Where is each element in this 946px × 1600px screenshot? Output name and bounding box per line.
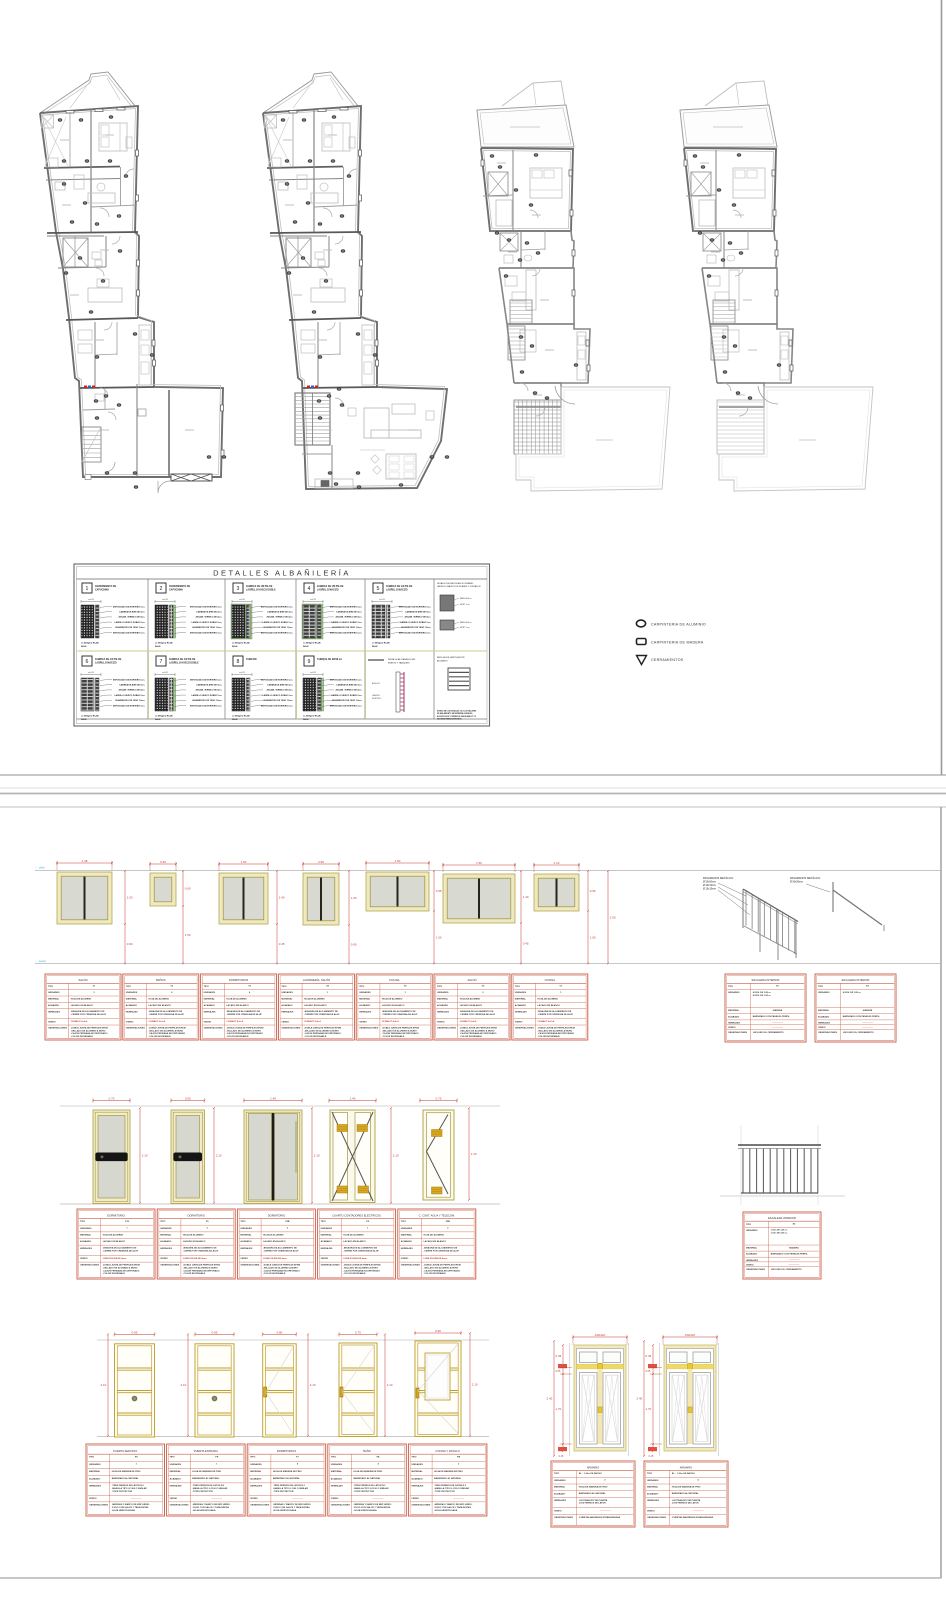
svg-text:LUNA PULIDA DE 4mm.: LUNA PULIDA DE 4mm.: [103, 1257, 128, 1260]
svg-text:CAMARA DE AIRE DE 5cm.: CAMARA DE AIRE DE 5cm.: [336, 684, 362, 687]
svg-text:AISLAM. TERMICO DE 4cm.: AISLAM. TERMICO DE 4cm.: [267, 689, 294, 692]
svg-text:TABICON: TABICON: [246, 658, 257, 661]
svg-text:UNIDADES: UNIDADES: [359, 991, 371, 994]
svg-text:HOJA DE MADERA DE PINO: HOJA DE MADERA DE PINO: [672, 1485, 701, 1488]
svg-text:-DOS PERNIOS DE LATON: -DOS PERNIOS DE LATON: [579, 1502, 606, 1505]
svg-text:—————: —————: [453, 1498, 465, 1500]
svg-text:CAMARA DE AIRE DE 5cm.: CAMARA DE AIRE DE 5cm.: [119, 611, 145, 614]
svg-text:TIPO: TIPO: [170, 1457, 175, 1459]
svg-text:—————: —————: [772, 1022, 784, 1024]
svg-text:OBSERVACIONES: OBSERVACIONES: [359, 1027, 379, 1030]
svg-text:TIPO: TIPO: [746, 1224, 751, 1226]
svg-text:MATERIAL: MATERIAL: [359, 998, 371, 1001]
svg-text:TIPO: TIPO: [515, 986, 520, 988]
svg-text:HERRAJES: HERRAJES: [170, 1484, 182, 1487]
svg-text:-COLOR INOXIDABLE: -COLOR INOXIDABLE: [304, 1035, 327, 1038]
svg-text:1.40: 1.40: [523, 895, 529, 899]
svg-text:-HOJA HIDROFUGADA: -HOJA HIDROFUGADA: [192, 1509, 216, 1512]
svg-text:BARNIZADO CON PANELES PERFIL: BARNIZADO CON PANELES PERFIL: [753, 1015, 791, 1018]
svg-text:-CIERRE POR CREMONA DE ALUF: -CIERRE POR CREMONA DE ALUF: [183, 1249, 219, 1252]
svg-text:VIDRIO: VIDRIO: [126, 1021, 134, 1023]
svg-text:RA-66: RA-66: [303, 645, 308, 648]
svg-text:MATERIAL: MATERIAL: [331, 1470, 343, 1473]
svg-text:ENFOSCADO DE MORTERO 1cm.: ENFOSCADO DE MORTERO 1cm.: [113, 678, 145, 681]
svg-text:-TRES PERNIOS DE LATON N.2: -TRES PERNIOS DE LATON N.2: [192, 1484, 225, 1487]
svg-text:-CIERRE POR CREMONA DE ALUF: -CIERRE POR CREMONA DE ALUF: [149, 1013, 185, 1016]
svg-text:ENFOSCADO DE MORTERO 1cm.: ENFOSCADO DE MORTERO 1cm.: [330, 631, 362, 634]
svg-text:-SELLADO DE ALUMINIO A MURO: -SELLADO DE ALUMINIO A MURO: [538, 1029, 573, 1032]
svg-text:LADRILLO HUECO DOBLE 7cm.: LADRILLO HUECO DOBLE 7cm.: [331, 694, 362, 697]
svg-text:-HOJA HIDROFUGADA: -HOJA HIDROFUGADA: [273, 1509, 297, 1512]
svg-text:ACABADO: ACABADO: [240, 1240, 251, 1243]
svg-text:LACADO EN BLANCO: LACADO EN BLANCO: [149, 1004, 172, 1007]
svg-text:0.75: 0.75: [355, 1330, 361, 1334]
svg-text:HOJA DE MADERA DE PINO: HOJA DE MADERA DE PINO: [273, 1470, 302, 1473]
svg-text:ACABADO: ACABADO: [401, 1240, 412, 1243]
svg-text:2.40: 2.40: [637, 1397, 643, 1401]
svg-text:e= 490kg/m2 Rf-240: e= 490kg/m2 Rf-240: [155, 715, 173, 718]
svg-text:e= 490kg/m2 Rf-240: e= 490kg/m2 Rf-240: [372, 642, 390, 645]
svg-text:ENFOSCADO DE MORTERO 1cm.: ENFOSCADO DE MORTERO 1cm.: [190, 605, 222, 608]
svg-text:VIDRIO: VIDRIO: [818, 1027, 826, 1029]
svg-text:LADRILLO HUECO DOBLE 7cm.: LADRILLO HUECO DOBLE 7cm.: [191, 694, 222, 697]
svg-text:PUERTA ENTRADA: PUERTA ENTRADA: [194, 1449, 218, 1453]
svg-text:RA-66: RA-66: [155, 645, 160, 648]
svg-text:ACABADO: ACABADO: [746, 1253, 757, 1256]
svg-text:-CAJON PERSIANA INCORPORADO: -CAJON PERSIANA INCORPORADO: [460, 1032, 497, 1035]
svg-text:ENFOSCADO DE MORTERO 1cm.: ENFOSCADO DE MORTERO 1cm.: [399, 605, 431, 608]
svg-text:VIDRIO: VIDRIO: [281, 1021, 289, 1023]
svg-text:UNIDADES: UNIDADES: [515, 991, 527, 994]
svg-text:TIPO: TIPO: [204, 986, 209, 988]
svg-text:MATERIAL: MATERIAL: [204, 998, 216, 1001]
svg-text:UNIDADES: UNIDADES: [160, 1227, 172, 1230]
svg-text:DORMITORIO: DORMITORIO: [187, 1213, 204, 1217]
svg-text:4 UDS. DE 1,90 m.: 4 UDS. DE 1,90 m.: [753, 994, 772, 997]
svg-text:2.10: 2.10: [310, 1383, 316, 1387]
svg-text:MATERIAL: MATERIAL: [728, 1009, 740, 1012]
svg-text:PB: PB: [457, 1457, 460, 1459]
svg-text:-DOBLE JUNTA DE PERFILES EPDM: -DOBLE JUNTA DE PERFILES EPDM: [343, 1264, 380, 1267]
svg-text:BARNIZADO AL NATURAL: BARNIZADO AL NATURAL: [579, 1492, 607, 1495]
svg-text:TIPO: TIPO: [401, 1221, 406, 1223]
svg-text:-CIERRE POR CREMONA DE ALUF: -CIERRE POR CREMONA DE ALUF: [460, 1013, 496, 1016]
svg-text:ARMARIO: ARMARIO: [680, 1465, 693, 1469]
svg-text:-CIERRE POR CREMONA DE ALUF: -CIERRE POR CREMONA DE ALUF: [382, 1013, 418, 1016]
svg-text:CAPUCHINA: CAPUCHINA: [169, 589, 183, 592]
svg-text:ACABADO: ACABADO: [170, 1477, 181, 1480]
svg-text:-BISAGRA DE ALOJAMIENTO DE: -BISAGRA DE ALOJAMIENTO DE: [226, 1010, 260, 1013]
svg-text:e=0.29: e=0.29: [162, 599, 168, 601]
svg-text:-COLOR INOXIDABLE: -COLOR INOXIDABLE: [263, 1272, 286, 1275]
svg-text:MATERIAL: MATERIAL: [515, 998, 527, 1001]
svg-text:VIDRIO: VIDRIO: [437, 1021, 445, 1023]
svg-text:HOJA DE MADERA DE PINO: HOJA DE MADERA DE PINO: [354, 1470, 383, 1473]
svg-text:LADRILLO HUECO DOBLE: LADRILLO HUECO DOBLE: [169, 662, 199, 665]
svg-text:VIDRIO: VIDRIO: [204, 1021, 212, 1023]
svg-text:UNIDADES: UNIDADES: [126, 991, 138, 994]
svg-text:ESCALERA INTERIOR: ESCALERA INTERIOR: [768, 1216, 796, 1220]
svg-text:HOJA DE ALUMINIO: HOJA DE ALUMINIO: [538, 997, 559, 1000]
svg-text:← suelo: ← suelo: [35, 959, 46, 963]
svg-text:2.10: 2.10: [393, 1154, 399, 1158]
svg-text:BARNIZADO AL NATURAL: BARNIZADO AL NATURAL: [112, 1477, 140, 1480]
svg-text:UNIDADES: UNIDADES: [170, 1463, 182, 1466]
svg-text:-TOPE PROTECTOR: -TOPE PROTECTOR: [434, 1491, 455, 1493]
svg-text:-HOJA HIDROFUGADA: -HOJA HIDROFUGADA: [434, 1509, 458, 1512]
svg-text:LUNA PULIDA DE 4mm.: LUNA PULIDA DE 4mm.: [183, 1257, 208, 1260]
svg-text:CAMARA DE AIRE DE 5cm.: CAMARA DE AIRE DE 5cm.: [405, 611, 431, 614]
svg-text:TIPO: TIPO: [160, 1221, 165, 1223]
svg-text:DORMITORIO: DORMITORIO: [268, 1213, 285, 1217]
svg-text:RASILLA 3cm.: RASILLA 3cm.: [460, 597, 472, 600]
svg-text:2.10: 2.10: [216, 1154, 222, 1158]
svg-text:RA-66: RA-66: [232, 718, 237, 721]
svg-text:-SELLADO DE ALUMINIO A MURO: -SELLADO DE ALUMINIO A MURO: [71, 1029, 106, 1032]
svg-text:ALUMINIO: ALUMINIO: [437, 660, 448, 663]
svg-text:CARPINTERIA DE MADERA: CARPINTERIA DE MADERA: [651, 641, 704, 645]
svg-text:1.10: 1.10: [554, 861, 560, 865]
svg-text:-COLOR INOXIDABLE: -COLOR INOXIDABLE: [183, 1272, 206, 1275]
svg-text:-CIERRE POR CREMONA DE ALUF: -CIERRE POR CREMONA DE ALUF: [71, 1013, 107, 1016]
svg-text:HOJA DE ALUMINIO: HOJA DE ALUMINIO: [424, 1233, 445, 1236]
svg-text:AZULEJO: AZULEJO: [372, 682, 381, 685]
svg-text:1: 1: [86, 586, 89, 592]
svg-text:0.90: 0.90: [127, 942, 133, 946]
svg-text:MORT. 1cm.: MORT. 1cm.: [460, 627, 470, 629]
svg-text:UNIDADES: UNIDADES: [437, 991, 449, 994]
svg-text:P9B: P9B: [285, 1221, 290, 1223]
svg-text:ACABADO: ACABADO: [89, 1477, 100, 1480]
svg-text:HOJA DE ALUMINIO: HOJA DE ALUMINIO: [460, 997, 481, 1000]
svg-text:OBSERVACIONES: OBSERVACIONES: [728, 1031, 748, 1034]
svg-text:MATERIAL: MATERIAL: [746, 1247, 758, 1250]
svg-text:TIPO: TIPO: [437, 986, 442, 988]
svg-text:TIPO: TIPO: [250, 1457, 255, 1459]
svg-text:-FUGO CON GALCE Y TAPAJUNTAS: -FUGO CON GALCE Y TAPAJUNTAS: [434, 1506, 471, 1509]
svg-text:VIDRIO: VIDRIO: [359, 1021, 367, 1023]
svg-text:RA-66: RA-66: [372, 645, 377, 648]
svg-text:0.45: 0.45: [279, 942, 285, 946]
svg-text:0.95: 0.95: [132, 1330, 138, 1334]
svg-text:-FUGO CON GALCE Y TAPAJUNTAS: -FUGO CON GALCE Y TAPAJUNTAS: [354, 1506, 391, 1509]
svg-text:-SELLADO DE ALUMINIO A MURO: -SELLADO DE ALUMINIO A MURO: [149, 1029, 184, 1032]
svg-text:UNIDADES: UNIDADES: [818, 991, 830, 994]
svg-text:0.95: 0.95: [212, 1330, 218, 1334]
svg-text:-CAJON PERSIANA INCORPORADO: -CAJON PERSIANA INCORPORADO: [382, 1032, 419, 1035]
svg-text:ACABADO: ACABADO: [647, 1492, 658, 1495]
svg-text:HERRAJES: HERRAJES: [281, 1010, 293, 1013]
svg-text:LACADO EN BLANCO: LACADO EN BLANCO: [382, 1004, 405, 1007]
svg-text:-BISAGRA DE ALOJAMIENTO DE: -BISAGRA DE ALOJAMIENTO DE: [183, 1247, 217, 1250]
svg-text:TIPO: TIPO: [411, 1457, 416, 1459]
svg-text:-FUGO CON GALCE Y TAPAJUNTAS: -FUGO CON GALCE Y TAPAJUNTAS: [273, 1506, 310, 1509]
svg-text:BARNIZADO CON PANELES PERFIL: BARNIZADO CON PANELES PERFIL: [843, 1015, 881, 1018]
svg-text:OBSERVACIONES: OBSERVACIONES: [554, 1516, 574, 1519]
svg-text:e=0.29: e=0.29: [310, 672, 316, 674]
svg-text:UNIDADES: UNIDADES: [204, 991, 216, 994]
svg-text:e=0.29: e=0.29: [239, 672, 245, 674]
svg-text:VALORES MINIMOS EXIGIDOS: VALORES MINIMOS EXIGIDOS: [437, 718, 462, 721]
svg-text:-MANILLA TIPO U-1100 O SIMILAR: -MANILLA TIPO U-1100 O SIMILAR: [354, 1487, 389, 1490]
svg-text:-UN TIRADOR POR PUERTA: -UN TIRADOR POR PUERTA: [579, 1499, 608, 1502]
svg-text:-CIERRE POR CREMONA DE ALUF: -CIERRE POR CREMONA DE ALUF: [424, 1249, 460, 1252]
svg-text:HERRAJES: HERRAJES: [321, 1247, 333, 1250]
svg-text:LADRILLO HUECO DOBLE 7cm.: LADRILLO HUECO DOBLE 7cm.: [262, 621, 293, 624]
svg-text:HOJA DE MADERA DE PINO: HOJA DE MADERA DE PINO: [192, 1470, 221, 1473]
svg-text:VIDRIO: VIDRIO: [411, 1498, 419, 1500]
svg-text:-COLOR INOXIDABLE: -COLOR INOXIDABLE: [343, 1272, 366, 1275]
svg-text:—————: —————: [131, 1498, 143, 1500]
svg-text:LACADO EN BLANCO: LACADO EN BLANCO: [304, 1004, 327, 1007]
svg-text:HOJA DE ALUMINIO: HOJA DE ALUMINIO: [382, 997, 403, 1000]
svg-text:HOJA DE ALUMINIO: HOJA DE ALUMINIO: [343, 1233, 364, 1236]
svg-text:HERRAJES: HERRAJES: [240, 1247, 252, 1250]
svg-text:ESCALERA INTERIOR: ESCALERA INTERIOR: [752, 978, 780, 982]
svg-text:2: 2: [160, 586, 163, 592]
svg-text:HERRAJES: HERRAJES: [728, 1021, 740, 1024]
svg-text:-TRES PERNIOS DE LATON N.2: -TRES PERNIOS DE LATON N.2: [273, 1484, 306, 1487]
svg-text:-DOBLE JUNTA DE PERFILES EPDM: -DOBLE JUNTA DE PERFILES EPDM: [304, 1026, 341, 1029]
svg-text:OBSERVACIONES: OBSERVACIONES: [240, 1264, 260, 1267]
svg-text:CAMARA DE AIRE DE 5cm.: CAMARA DE AIRE DE 5cm.: [196, 611, 222, 614]
svg-text:HERRAJES: HERRAJES: [160, 1247, 172, 1250]
svg-text:HERRAJES: HERRAJES: [126, 1010, 138, 1013]
svg-text:PUERTA SERVICIO: PUERTA SERVICIO: [113, 1449, 137, 1453]
svg-text:CARPINTERIA DE ALUMINIO: CARPINTERIA DE ALUMINIO: [651, 623, 706, 627]
svg-text:-SELLADO DE ALUMINIO A MURO: -SELLADO DE ALUMINIO A MURO: [343, 1266, 378, 1269]
svg-text:OBSERVACIONES: OBSERVACIONES: [647, 1516, 667, 1519]
svg-text:LUNA PULIDA DE 4mm.: LUNA PULIDA DE 4mm.: [424, 1257, 449, 1260]
svg-text:4 UDS. DE 1,85 m.: 4 UDS. DE 1,85 m.: [843, 991, 862, 994]
svg-text:-SELLADO DE ALUMINIO A MURO: -SELLADO DE ALUMINIO A MURO: [183, 1266, 218, 1269]
svg-text:1.50: 1.50: [395, 859, 401, 863]
svg-text:DETALLE DE ENFOSCADOS CERAMIC: DETALLE DE ENFOSCADOS CERAMIC: [437, 582, 474, 585]
svg-text:UNIDADES: UNIDADES: [411, 1463, 423, 1466]
svg-text:TABIQUE DE RASILLA: TABIQUE DE RASILLA: [317, 658, 342, 661]
svg-text:-COLOR INOXIDABLE: -COLOR INOXIDABLE: [103, 1272, 126, 1275]
svg-text:-MEDIDAS Y MARCO DE MDF HIDRO-: -MEDIDAS Y MARCO DE MDF HIDRO-: [273, 1503, 312, 1506]
svg-text:DE AISLAMIENTO SE REFIEREN A N: DE AISLAMIENTO SE REFIEREN A NIVELES: [437, 712, 473, 715]
svg-text:-CIERRE POR CREMONA DE ALUF: -CIERRE POR CREMONA DE ALUF: [263, 1249, 299, 1252]
svg-text:-BISAGRA DE ALOJAMIENTO DE: -BISAGRA DE ALOJAMIENTO DE: [382, 1010, 416, 1013]
svg-text:ANCHO: ANCHO: [595, 1333, 606, 1337]
svg-text:9: 9: [308, 659, 311, 665]
svg-text:-COLOR INOXIDABLE: -COLOR INOXIDABLE: [460, 1035, 483, 1038]
svg-text:OBSERVACIONES: OBSERVACIONES: [160, 1264, 180, 1267]
svg-text:-FUGO CON GALCE Y TAPAJUNTAS: -FUGO CON GALCE Y TAPAJUNTAS: [192, 1506, 229, 1509]
svg-text:FABRICA DE 1/2 PIE DE: FABRICA DE 1/2 PIE DE: [386, 585, 413, 588]
svg-text:UNIDADES: UNIDADES: [331, 1463, 343, 1466]
svg-text:TIPO: TIPO: [818, 986, 823, 988]
svg-text:—————: —————: [211, 1498, 223, 1500]
svg-text:MATERIAL: MATERIAL: [647, 1486, 659, 1489]
svg-text:UNIDADES: UNIDADES: [401, 1227, 413, 1230]
svg-text:4: 4: [308, 586, 311, 592]
svg-text:LACADO EN BLANCO: LACADO EN BLANCO: [226, 1004, 249, 1007]
svg-text:LADRILLO HUECO DOBLE 7cm.: LADRILLO HUECO DOBLE 7cm.: [331, 621, 362, 624]
svg-text:CLIMALIT 4+6+4: CLIMALIT 4+6+4: [538, 1020, 555, 1023]
svg-text:0.15: 0.15: [649, 1455, 654, 1458]
svg-text:2.50: 2.50: [610, 915, 616, 919]
svg-text:LACADO EN BLANCO: LACADO EN BLANCO: [183, 1240, 206, 1243]
svg-text:ENFOSCADO DE MORTERO 1cm.: ENFOSCADO DE MORTERO 1cm.: [190, 704, 222, 707]
svg-text:TIPO: TIPO: [554, 1473, 559, 1475]
svg-text:8: 8: [237, 659, 240, 665]
svg-text:MORTERO: MORTERO: [372, 698, 382, 700]
svg-text:OBSERVACIONES: OBSERVACIONES: [126, 1027, 146, 1030]
svg-text:RA-66: RA-66: [232, 645, 237, 648]
svg-text:ACABADO: ACABADO: [411, 1477, 422, 1480]
svg-text:0.45: 0.45: [556, 1354, 562, 1358]
svg-text:0.75: 0.75: [436, 1097, 442, 1101]
svg-text:-DOS PERNIOS DE LATON: -DOS PERNIOS DE LATON: [672, 1502, 699, 1505]
svg-text:PA: PA: [377, 1456, 380, 1459]
svg-text:DORMITORIOS: DORMITORIOS: [277, 1449, 296, 1453]
svg-text:TIPO: TIPO: [281, 986, 286, 988]
svg-text:VIDRIO: VIDRIO: [515, 1021, 523, 1023]
svg-text:0.95: 0.95: [590, 889, 596, 893]
svg-text:AISLAM. TERMICO DE 4cm.: AISLAM. TERMICO DE 4cm.: [119, 689, 146, 692]
svg-text:1.40: 1.40: [270, 1097, 276, 1101]
svg-text:PASAMANOS METÁLICO: PASAMANOS METÁLICO: [703, 876, 733, 880]
svg-text:1.70: 1.70: [646, 1407, 652, 1411]
svg-text:ANCHO: ANCHO: [685, 1333, 696, 1337]
svg-text:OBSERVACIONES: OBSERVACIONES: [401, 1264, 421, 1267]
svg-text:-TRES PERNIOS DE LATON N.2: -TRES PERNIOS DE LATON N.2: [354, 1484, 387, 1487]
svg-text:-CAJON PERSIANA INCORPORADO: -CAJON PERSIANA INCORPORADO: [71, 1032, 108, 1035]
svg-text:HERRAJES: HERRAJES: [204, 1010, 216, 1013]
svg-text:1.40: 1.40: [350, 1097, 356, 1101]
svg-text:—————: —————: [862, 1027, 874, 1029]
svg-text:GUARNECIDO DE YESO 1,5cm.: GUARNECIDO DE YESO 1,5cm.: [115, 626, 145, 629]
svg-text:FABRICA DE 1/2 PIE DE: FABRICA DE 1/2 PIE DE: [169, 658, 196, 661]
svg-text:UNIDADES: UNIDADES: [728, 991, 740, 994]
svg-text:MATERIAL: MATERIAL: [250, 1470, 262, 1473]
svg-text:LADRILLO HUECO DOBLE 7cm.: LADRILLO HUECO DOBLE 7cm.: [114, 694, 145, 697]
svg-text:ENFOSCADO DE MORTERO 1cm.: ENFOSCADO DE MORTERO 1cm.: [330, 605, 362, 608]
svg-text:-CAJON PERSIANA INCORPORADO: -CAJON PERSIANA INCORPORADO: [304, 1032, 341, 1035]
svg-text:VIDRIO: VIDRIO: [240, 1258, 248, 1260]
svg-text:-INCLUIDO EL CERRAMIENTO: -INCLUIDO EL CERRAMIENTO: [753, 1031, 784, 1034]
svg-text:-CAJON PERSIANA INCORPORADO: -CAJON PERSIANA INCORPORADO: [424, 1269, 461, 1272]
svg-text:-BISAGRA DE ALOJAMIENTO DE: -BISAGRA DE ALOJAMIENTO DE: [460, 1010, 494, 1013]
svg-text:-CIERRE POR CREMONA DE ALUF: -CIERRE POR CREMONA DE ALUF: [304, 1013, 340, 1016]
svg-text:DORMITORIO: DORMITORIO: [107, 1213, 124, 1217]
svg-text:-COLOR INOXIDABLE: -COLOR INOXIDABLE: [149, 1035, 172, 1038]
svg-text:VIDRIO: VIDRIO: [48, 1021, 56, 1023]
svg-text:ACABADO: ACABADO: [126, 1004, 137, 1007]
svg-text:OBSERVACIONES: OBSERVACIONES: [331, 1503, 351, 1506]
svg-text:CAPA DE: CAPA DE: [372, 694, 380, 697]
svg-text:VIDRIO: VIDRIO: [331, 1498, 339, 1500]
svg-text:-CAJON PERSIANA INCORPORADO: -CAJON PERSIANA INCORPORADO: [103, 1269, 140, 1272]
svg-text:AISLAM. TERMICO DE 4cm.: AISLAM. TERMICO DE 4cm.: [196, 689, 223, 692]
svg-text:e=0.29: e=0.29: [379, 599, 385, 601]
svg-text:TIPO: TIPO: [321, 1221, 326, 1223]
svg-text:6: 6: [86, 659, 89, 665]
svg-text:5: 5: [377, 586, 380, 592]
svg-text:UNIDADES: UNIDADES: [250, 1463, 262, 1466]
svg-text:UNIDADES: UNIDADES: [89, 1463, 101, 1466]
svg-text:1.48: 1.48: [82, 859, 88, 863]
svg-text:LADRILLO MACIZO EN PILARES Y F: LADRILLO MACIZO EN PILARES Y FORJADOS: [437, 585, 481, 588]
svg-text:1.40: 1.40: [279, 896, 285, 900]
svg-text:VIDRIO: VIDRIO: [647, 1510, 655, 1512]
svg-text:TIPO: TIPO: [359, 986, 364, 988]
svg-text:—————: —————: [789, 1260, 801, 1262]
svg-text:1.70: 1.70: [556, 1407, 562, 1411]
svg-text:OBSERVACIONES: OBSERVACIONES: [204, 1027, 224, 1030]
svg-text:OBSERVACIONES: OBSERVACIONES: [48, 1027, 68, 1030]
svg-text:—————: —————: [693, 1510, 705, 1512]
svg-text:GUARNECIDO DE YESO 1,5cm.: GUARNECIDO DE YESO 1,5cm.: [115, 699, 145, 702]
svg-text:BARNIZADO AL NATURAL: BARNIZADO AL NATURAL: [434, 1477, 462, 1480]
svg-text:-TRES PERNIOS DE LATON N.2: -TRES PERNIOS DE LATON N.2: [434, 1484, 467, 1487]
svg-text:CLIMALIT 4+6+4: CLIMALIT 4+6+4: [304, 1020, 321, 1023]
svg-text:HOJA DE ALUMINIO: HOJA DE ALUMINIO: [71, 997, 92, 1000]
svg-text:BARNIZADO AL NATURAL: BARNIZADO AL NATURAL: [354, 1477, 382, 1480]
svg-text:0.05: 0.05: [556, 1370, 561, 1373]
svg-text:1.50: 1.50: [476, 861, 482, 865]
svg-text:-SELLADO DE ALUMINIO A MURO: -SELLADO DE ALUMINIO A MURO: [382, 1029, 417, 1032]
svg-text:OBSERVACIONES: OBSERVACIONES: [89, 1503, 109, 1506]
svg-text:-CAJON PERSIANA INCORPORADO: -CAJON PERSIANA INCORPORADO: [538, 1032, 575, 1035]
svg-text:-DOBLE JUNTA DE PERFILES EPDM: -DOBLE JUNTA DE PERFILES EPDM: [382, 1026, 419, 1029]
svg-text:GUARNECIDO DE YESO 1,5cm.: GUARNECIDO DE YESO 1,5cm.: [192, 626, 222, 629]
svg-text:ACABADO: ACABADO: [359, 1004, 370, 1007]
svg-text:-BISAGRA DE ALOJAMIENTO DE: -BISAGRA DE ALOJAMIENTO DE: [149, 1010, 183, 1013]
svg-text:LUNA PULIDA DE 4mm.: LUNA PULIDA DE 4mm.: [343, 1257, 368, 1260]
svg-text:UNIDADES: UNIDADES: [48, 991, 60, 994]
svg-text:0.90: 0.90: [435, 1329, 441, 1333]
svg-text:-HOJA HIDROFUGADA: -HOJA HIDROFUGADA: [112, 1509, 136, 1512]
svg-text:-CIERRE POR CREMONA DE ALUF: -CIERRE POR CREMONA DE ALUF: [103, 1249, 139, 1252]
svg-text:HERRAJES: HERRAJES: [437, 1010, 449, 1013]
svg-text:OBSERVACIONES: OBSERVACIONES: [437, 1027, 457, 1030]
svg-text:-MEDIDAS Y MARCO DE MDF HIDRO-: -MEDIDAS Y MARCO DE MDF HIDRO-: [354, 1503, 393, 1506]
svg-text:—————: —————: [373, 1498, 385, 1500]
svg-text:MORT. 1cm.: MORT. 1cm.: [460, 604, 470, 606]
svg-text:RA-66: RA-66: [303, 718, 308, 721]
svg-text:ACABADO: ACABADO: [160, 1240, 171, 1243]
svg-text:e= 490kg/m2 Rf-240: e= 490kg/m2 Rf-240: [232, 642, 250, 645]
svg-text:MADERA: MADERA: [789, 1246, 799, 1249]
svg-text:2.10: 2.10: [472, 1383, 478, 1387]
svg-text:COCINA Y PASILLO: COCINA Y PASILLO: [435, 1449, 460, 1453]
svg-text:GUARNECIDO DE YESO 1,5cm.: GUARNECIDO DE YESO 1,5cm.: [192, 699, 222, 702]
svg-text:-COLOR INOXIDABLE: -COLOR INOXIDABLE: [226, 1035, 249, 1038]
svg-text:CERRAMIENTO DE: CERRAMIENTO DE: [169, 585, 191, 588]
svg-text:LADRILLO HUECO DOBLE 7cm.: LADRILLO HUECO DOBLE 7cm.: [262, 694, 293, 697]
svg-text:2.10: 2.10: [387, 1383, 393, 1387]
svg-text:CLIMALIT 4+6+4: CLIMALIT 4+6+4: [226, 1020, 243, 1023]
svg-text:ACABADO: ACABADO: [80, 1240, 91, 1243]
svg-text:ENFOSCADO DE MORTERO 1cm.: ENFOSCADO DE MORTERO 1cm.: [113, 704, 145, 707]
svg-text:2.10: 2.10: [181, 1383, 187, 1387]
svg-text:HOJA DE MADERA DE PINO: HOJA DE MADERA DE PINO: [434, 1470, 463, 1473]
svg-text:-CIERRE POR CREMONA DE ALUF: -CIERRE POR CREMONA DE ALUF: [343, 1249, 379, 1252]
svg-text:VIDRIO: VIDRIO: [401, 1258, 409, 1260]
svg-text:CAPUCHINA: CAPUCHINA: [95, 589, 109, 592]
svg-text:RA-66: RA-66: [155, 718, 160, 721]
svg-text:0.65: 0.65: [185, 1097, 191, 1101]
svg-text:ACUSTICOS Rf Y TERMICOS SEGUN: ACUSTICOS Rf Y TERMICOS SEGUN NBE-CT-79: [437, 715, 476, 718]
svg-text:-MANILLA TIPO U-1100 O SIMILAR: -MANILLA TIPO U-1100 O SIMILAR: [192, 1487, 227, 1490]
svg-text:-TRES PERNIOS DE LATON N.2: -TRES PERNIOS DE LATON N.2: [112, 1484, 145, 1487]
svg-text:VIDRIO: VIDRIO: [250, 1498, 258, 1500]
svg-text:-CIERRE POR CREMONA DE ALUF: -CIERRE POR CREMONA DE ALUF: [538, 1013, 574, 1016]
